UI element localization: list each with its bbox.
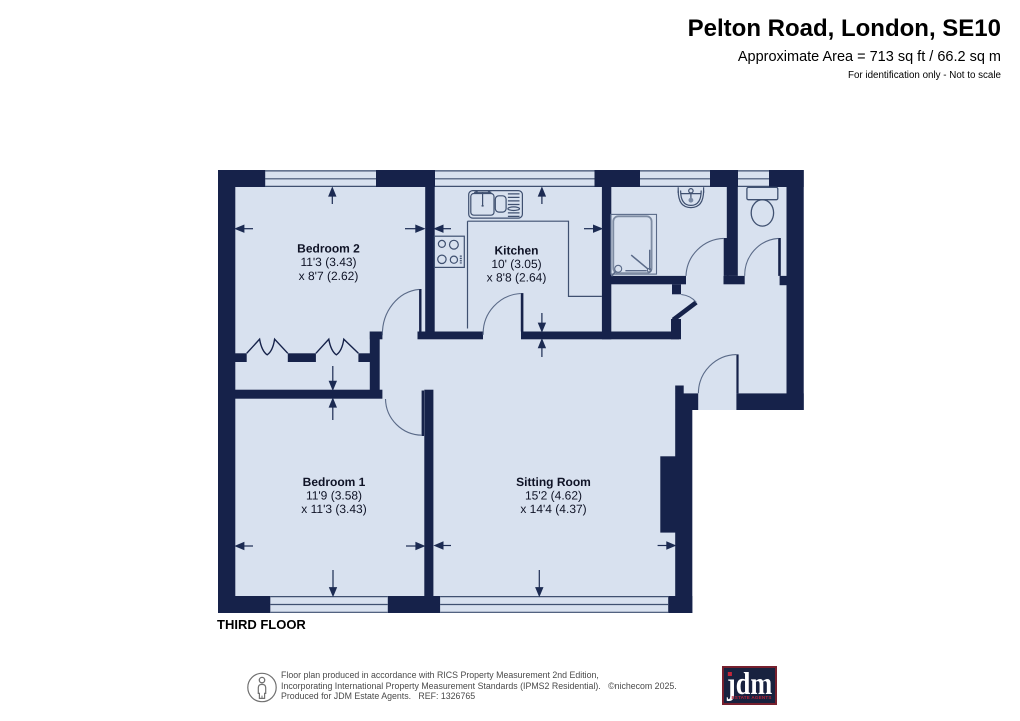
svg-text:10' (3.05): 10' (3.05) bbox=[491, 257, 541, 271]
svg-text:x 11'3 (3.43): x 11'3 (3.43) bbox=[301, 502, 366, 516]
svg-text:x 8'7 (2.62): x 8'7 (2.62) bbox=[299, 269, 359, 283]
svg-text:x 8'8 (2.64): x 8'8 (2.64) bbox=[487, 271, 547, 285]
svg-text:11'9 (3.58): 11'9 (3.58) bbox=[306, 489, 362, 503]
svg-text:Sitting Room: Sitting Room bbox=[516, 475, 591, 489]
svg-text:11'3 (3.43): 11'3 (3.43) bbox=[300, 255, 356, 269]
svg-text:Bedroom 1: Bedroom 1 bbox=[303, 475, 366, 489]
svg-text:Kitchen: Kitchen bbox=[494, 243, 538, 257]
svg-text:x 14'4 (4.37): x 14'4 (4.37) bbox=[520, 502, 586, 516]
svg-text:15'2 (4.62): 15'2 (4.62) bbox=[525, 489, 582, 503]
svg-text:Bedroom 2: Bedroom 2 bbox=[297, 242, 360, 256]
